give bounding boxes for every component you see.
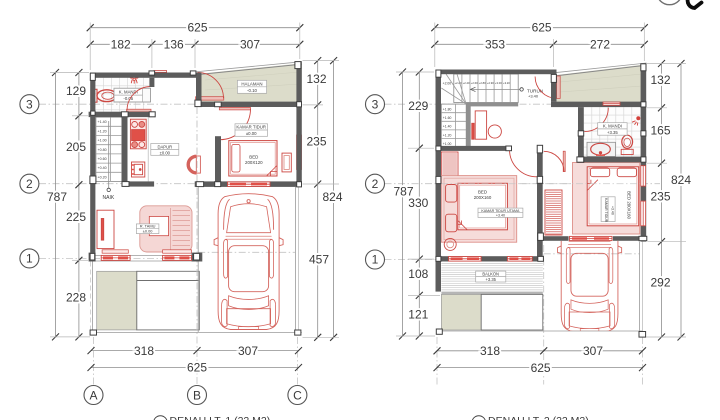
svg-text:DENAH LT. 1 (22 M2): DENAH LT. 1 (22 M2) (170, 415, 271, 420)
svg-text:+0.80: +0.80 (98, 148, 107, 152)
svg-text:3: 3 (372, 97, 379, 111)
svg-text:318: 318 (134, 344, 154, 358)
svg-text:353: 353 (485, 37, 505, 51)
svg-text:+1.00: +1.00 (98, 139, 107, 143)
svg-text:+3.20: +3.20 (503, 81, 510, 85)
svg-text:787: 787 (47, 190, 67, 204)
svg-text:121: 121 (408, 308, 428, 322)
svg-text:272: 272 (590, 37, 610, 51)
svg-text:DENAH LT. 2 (22 M2): DENAH LT. 2 (22 M2) (488, 415, 589, 420)
svg-text:200X160: 200X160 (474, 195, 492, 200)
svg-text:3: 3 (26, 97, 33, 111)
svg-text:-0.05: -0.05 (123, 96, 133, 101)
svg-text:+2.00: +2.00 (443, 82, 452, 86)
svg-text:132: 132 (650, 73, 670, 87)
svg-text:BED 200X160: BED 200X160 (627, 191, 632, 219)
svg-text:225: 225 (66, 210, 86, 224)
svg-text:318: 318 (480, 344, 500, 358)
svg-text:824: 824 (322, 190, 342, 204)
svg-text:235: 235 (306, 135, 326, 149)
svg-text:330: 330 (408, 196, 428, 210)
svg-text:+1.20: +1.20 (443, 133, 452, 137)
svg-text:824: 824 (671, 173, 691, 187)
svg-text:+1.40: +1.40 (98, 120, 107, 124)
svg-text:228: 228 (66, 291, 86, 305)
svg-text:+1.60: +1.60 (443, 116, 452, 120)
svg-text:132: 132 (306, 72, 326, 86)
svg-text:457: 457 (309, 253, 329, 267)
svg-text:129: 129 (66, 84, 86, 98)
svg-text:+0.20: +0.20 (98, 175, 107, 179)
svg-text:KAMAR TIDUR: KAMAR TIDUR (604, 198, 608, 223)
svg-text:+3.40: +3.40 (528, 94, 539, 99)
svg-text:2: 2 (372, 177, 379, 191)
svg-text:+3.35: +3.35 (607, 130, 618, 135)
svg-text:+3.40: +3.40 (496, 214, 505, 218)
svg-text:229: 229 (408, 99, 428, 113)
svg-text:+2.80: +2.80 (479, 81, 486, 85)
svg-text:307: 307 (238, 344, 258, 358)
svg-text:-0.10: -0.10 (247, 88, 258, 93)
svg-text:C: C (293, 388, 302, 402)
svg-text:K. MANDI: K. MANDI (603, 124, 622, 129)
svg-text:+0.60: +0.60 (98, 157, 107, 161)
svg-text:+2.40: +2.40 (463, 81, 470, 85)
svg-text:±0.00: ±0.00 (160, 150, 171, 155)
svg-text:235: 235 (650, 190, 670, 204)
svg-text:+3.00: +3.00 (495, 81, 502, 85)
svg-text:BALKON: BALKON (482, 272, 499, 277)
svg-text:625: 625 (531, 361, 551, 375)
svg-text:+1.00: +1.00 (443, 142, 452, 146)
svg-text:625: 625 (187, 361, 207, 375)
svg-text:625: 625 (187, 21, 207, 35)
svg-text:136: 136 (164, 37, 184, 51)
svg-text:BED: BED (249, 154, 258, 159)
svg-text:DAPUR: DAPUR (157, 144, 172, 149)
svg-text:+2.20: +2.20 (455, 81, 462, 85)
svg-text:+3.35: +3.35 (486, 277, 497, 282)
svg-text:292: 292 (650, 275, 670, 289)
svg-text:1: 1 (26, 252, 33, 266)
svg-text:182: 182 (111, 37, 131, 51)
svg-text:HALAMAN: HALAMAN (241, 81, 262, 86)
svg-text:307: 307 (240, 37, 260, 51)
svg-text:±0.00: ±0.00 (246, 131, 257, 136)
svg-text:KAMAR TIDUR: KAMAR TIDUR (236, 125, 266, 130)
svg-text:A: A (89, 388, 97, 402)
svg-text:205: 205 (66, 140, 86, 154)
svg-text:NAIK: NAIK (103, 195, 115, 201)
svg-text:±0.00: ±0.00 (143, 229, 154, 234)
svg-text:+0.40: +0.40 (98, 166, 107, 170)
svg-text:200X120: 200X120 (245, 160, 263, 165)
svg-text:B: B (193, 388, 201, 402)
svg-text:307: 307 (583, 344, 603, 358)
svg-text:BED: BED (478, 190, 487, 195)
svg-text:625: 625 (532, 21, 552, 35)
svg-text:+1.20: +1.20 (98, 129, 107, 133)
svg-text:+3.40: +3.40 (611, 206, 615, 215)
svg-text:+1.80: +1.80 (443, 108, 452, 112)
svg-text:+2.90: +2.90 (487, 81, 494, 85)
svg-text:+2.60: +2.60 (471, 81, 478, 85)
svg-text:KAMAR TIDUR UTAMA: KAMAR TIDUR UTAMA (481, 209, 520, 213)
svg-text:1: 1 (372, 253, 379, 267)
svg-text:+1.40: +1.40 (443, 125, 452, 129)
svg-text:165: 165 (650, 123, 670, 137)
svg-text:108: 108 (408, 267, 428, 281)
svg-text:2: 2 (26, 177, 33, 191)
